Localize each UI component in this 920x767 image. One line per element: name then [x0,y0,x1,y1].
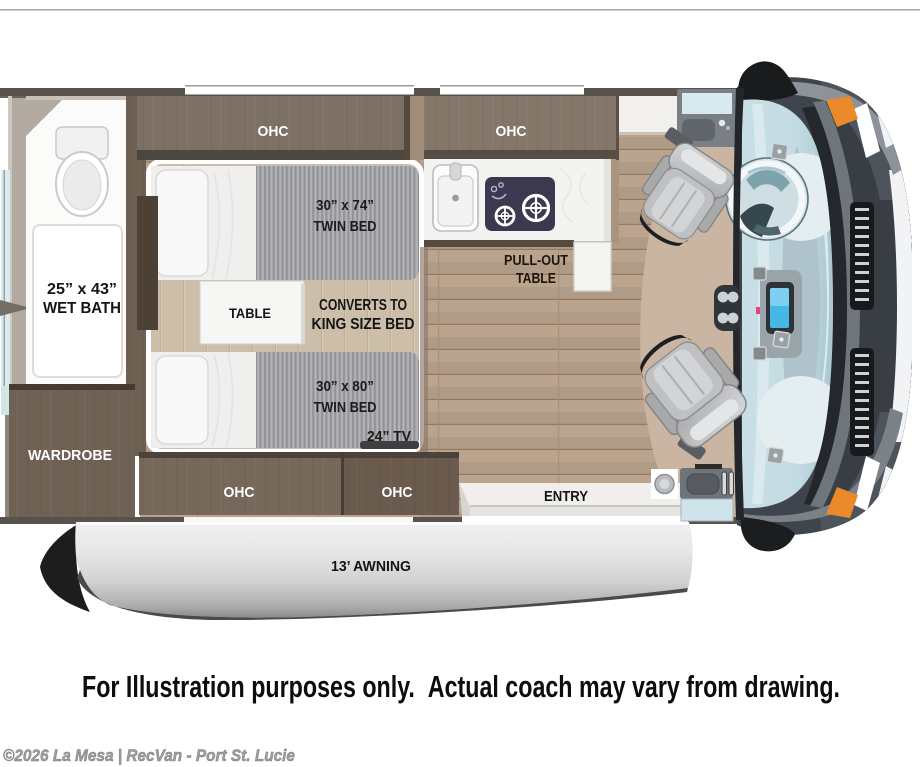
svg-text:For Illustration purposes only: For Illustration purposes only. Actual c… [82,669,840,704]
svg-text:OHC: OHC [496,123,527,140]
svg-text:©2026 La Mesa | RecVan - Port: ©2026 La Mesa | RecVan - Port St. Lucie [3,746,295,765]
svg-text:TABLE: TABLE [516,271,556,287]
svg-text:WARDROBE: WARDROBE [28,448,112,464]
svg-text:PULL-OUT: PULL-OUT [504,253,568,269]
svg-text:WET BATH: WET BATH [43,300,121,317]
svg-text:TABLE: TABLE [229,305,271,321]
svg-text:ENTRY: ENTRY [544,489,588,505]
svg-text:OHC: OHC [258,123,289,140]
svg-text:25” x 43”: 25” x 43” [47,281,117,298]
svg-text:KING SIZE BED: KING SIZE BED [312,316,415,333]
svg-text:24” TV: 24” TV [367,429,411,445]
svg-text:CONVERTS TO: CONVERTS TO [319,297,407,314]
svg-text:13’ AWNING: 13’ AWNING [331,559,411,575]
svg-text:TWIN BED: TWIN BED [314,399,377,416]
svg-text:OHC: OHC [224,484,255,501]
svg-text:TWIN BED: TWIN BED [314,218,377,235]
svg-text:30” x 74”: 30” x 74” [316,197,374,214]
svg-text:OHC: OHC [382,484,413,501]
svg-text:30” x 80”: 30” x 80” [316,378,374,395]
